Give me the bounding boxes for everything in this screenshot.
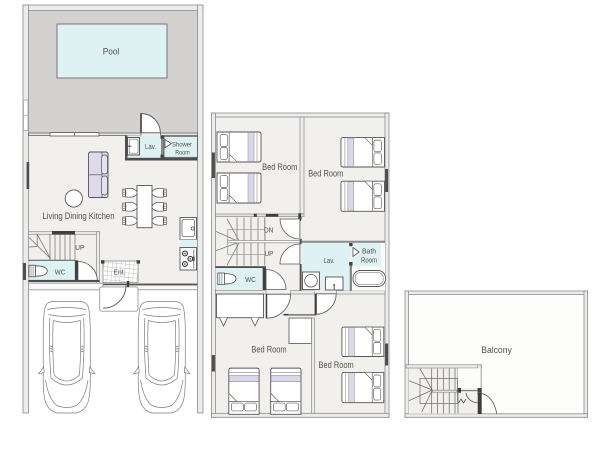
svg-text:Bed Room: Bed Room — [319, 359, 354, 370]
svg-text:Bed Room: Bed Room — [251, 343, 286, 354]
svg-text:WC: WC — [245, 277, 256, 284]
svg-text:Room: Room — [361, 258, 377, 265]
svg-text:Lav.: Lav. — [324, 258, 335, 265]
svg-text:DN: DN — [264, 227, 274, 234]
svg-text:UP: UP — [75, 245, 84, 252]
svg-text:Bed Room: Bed Room — [262, 161, 297, 172]
svg-text:UP: UP — [265, 251, 274, 258]
svg-text:Living Dining Kitchen: Living Dining Kitchen — [43, 211, 115, 221]
svg-text:Bath: Bath — [362, 249, 376, 256]
svg-text:WC: WC — [55, 269, 66, 276]
svg-text:Shower: Shower — [172, 142, 193, 149]
svg-text:Bed Room: Bed Room — [308, 168, 343, 179]
svg-text:Balcony: Balcony — [481, 344, 512, 355]
svg-text:Lav.: Lav. — [145, 144, 156, 151]
svg-text:Room: Room — [175, 149, 190, 156]
svg-text:Ent.: Ent. — [114, 269, 126, 276]
svg-text:Pool: Pool — [103, 46, 120, 57]
